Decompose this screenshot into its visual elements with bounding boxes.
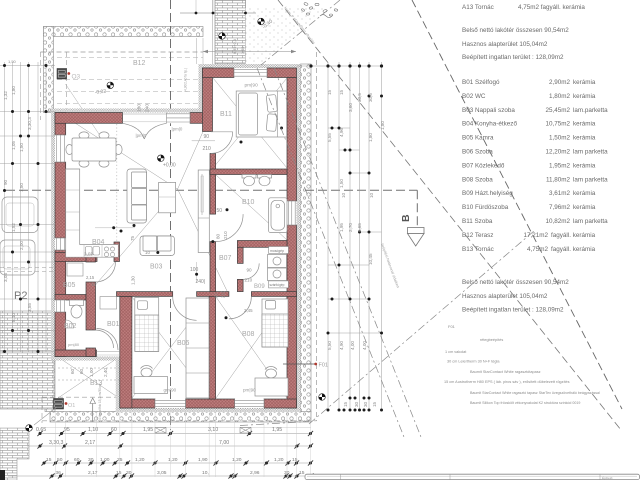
svg-text:Baumit StarContact White ragas: Baumit StarContact White ragasztótapasz <box>470 370 541 374</box>
svg-text:B08 Szoba: B08 Szoba <box>462 176 493 183</box>
svg-text:90: 90 <box>3 179 8 185</box>
svg-text:1,20: 1,20 <box>168 457 178 463</box>
svg-text:Építtető:: Építtető: <box>602 475 613 480</box>
svg-text:5,55: 5,55 <box>327 133 332 142</box>
svg-text:B08: B08 <box>242 331 255 338</box>
svg-text:3,05: 3,05 <box>157 470 167 476</box>
svg-text:1,80: 1,80 <box>11 86 16 95</box>
svg-text:1,50m2: 1,50m2 <box>549 135 571 142</box>
svg-text:O1: O1 <box>68 403 75 409</box>
svg-text:240|: 240| <box>196 279 206 285</box>
svg-text:30,5: 30,5 <box>357 93 362 102</box>
svg-text:1,50: 1,50 <box>339 179 344 188</box>
svg-text:Beépített ingatlan terület : 1: Beépített ingatlan terület : 128,09m2 <box>462 54 564 61</box>
svg-text:25,45m2: 25,45m2 <box>545 107 570 114</box>
svg-text:8,10: 8,10 <box>11 313 16 322</box>
svg-text:60: 60 <box>111 427 117 433</box>
svg-text:2,17: 2,17 <box>85 440 95 446</box>
svg-text:szárítógép: szárítógép <box>270 283 285 287</box>
svg-text:15: 15 <box>299 470 305 476</box>
svg-text:10,75m2: 10,75m2 <box>545 121 570 128</box>
svg-text:B01 Szélfogó: B01 Szélfogó <box>462 79 500 86</box>
svg-text:B13: B13 <box>90 380 103 387</box>
svg-text:B01: B01 <box>107 321 120 328</box>
svg-text:B05 Kamra: B05 Kamra <box>462 135 494 142</box>
svg-text:3,55: 3,55 <box>27 303 32 312</box>
svg-text:10: 10 <box>145 250 150 255</box>
svg-text:60: 60 <box>70 368 75 374</box>
svg-text:210: 210 <box>245 278 253 283</box>
svg-text:1,00: 1,00 <box>89 368 94 377</box>
svg-text:pm|90: pm|90 <box>245 83 259 89</box>
svg-text:2,45: 2,45 <box>244 308 253 313</box>
svg-text:1,50: 1,50 <box>19 143 24 152</box>
svg-text:2,15: 2,15 <box>86 275 95 280</box>
svg-text:1,95m2: 1,95m2 <box>549 162 571 169</box>
svg-text:1,80: 1,80 <box>368 133 373 142</box>
svg-text:7,00: 7,00 <box>219 440 229 446</box>
svg-text:10,82m2: 10,82m2 <box>545 218 570 225</box>
svg-text:1,20: 1,20 <box>135 457 145 463</box>
svg-text:A13 Tornác: A13 Tornác <box>462 4 494 11</box>
svg-text:3,10: 3,10 <box>208 427 218 433</box>
svg-text:B11: B11 <box>220 111 232 118</box>
svg-text:95: 95 <box>64 427 70 433</box>
svg-text:10,: 10, <box>202 470 209 476</box>
svg-text:fagyáll. kerámia: fagyáll. kerámia <box>551 232 596 239</box>
svg-text:210: 210 <box>223 231 228 239</box>
svg-text:100: 100 <box>190 267 199 273</box>
svg-text:pm|90: pm|90 <box>243 388 256 393</box>
svg-text:lam.parketta: lam.parketta <box>573 107 608 114</box>
svg-text:30: 30 <box>354 401 359 407</box>
svg-text:6,65: 6,65 <box>357 223 362 232</box>
svg-text:lam parketta: lam parketta <box>573 218 608 225</box>
svg-text:30: 30 <box>126 470 132 476</box>
svg-text:lam parketta: lam parketta <box>573 176 608 183</box>
svg-text:15: 15 <box>116 470 122 476</box>
svg-text:2,70: 2,70 <box>348 223 353 232</box>
svg-text:3,30,3: 3,30,3 <box>27 117 32 130</box>
svg-text:10: 10 <box>341 192 346 198</box>
svg-text:50: 50 <box>217 208 223 214</box>
svg-text:|pm|0: |pm|0 <box>172 127 183 132</box>
svg-text:Hasznos alapterület 105,04m2: Hasznos alapterület 105,04m2 <box>462 293 548 300</box>
svg-text:7,96m2: 7,96m2 <box>549 204 571 211</box>
svg-text:2,03: 2,03 <box>84 252 93 257</box>
svg-text:B06 Szoba: B06 Szoba <box>462 149 493 156</box>
svg-text:kerámia: kerámia <box>573 162 596 169</box>
svg-text:4,90: 4,90 <box>339 341 344 350</box>
svg-text:1,52: 1,52 <box>11 223 16 232</box>
svg-text:B02: B02 <box>64 323 77 330</box>
svg-text:30,5: 30,5 <box>368 93 373 102</box>
svg-text:lam parketta: lam parketta <box>573 149 608 156</box>
svg-text:2,90m2: 2,90m2 <box>549 79 571 86</box>
svg-text:4,00: 4,00 <box>350 341 355 350</box>
svg-text:1,50: 1,50 <box>241 47 245 54</box>
svg-text:B07: B07 <box>219 255 232 262</box>
svg-text:15: 15 <box>292 457 298 463</box>
svg-text:15: 15 <box>343 401 348 407</box>
svg-text:pm|80: pm|80 <box>68 342 80 347</box>
svg-text:O3: O3 <box>72 74 81 81</box>
svg-text:kerámia: kerámia <box>573 121 596 128</box>
svg-text:Baumit Silikon Top fröcskölt v: Baumit Silikon Top fröcskölt vékonyvakol… <box>470 401 580 405</box>
svg-text:B09 Házt.helyiség: B09 Házt.helyiség <box>462 190 513 197</box>
svg-text:fagyáll. kerámia: fagyáll. kerámia <box>551 246 596 253</box>
svg-text:1,00: 1,00 <box>100 457 110 463</box>
svg-text:F01: F01 <box>319 363 328 369</box>
svg-text:30: 30 <box>88 457 94 463</box>
svg-text:60: 60 <box>79 368 84 374</box>
svg-text:B05: B05 <box>63 282 76 289</box>
svg-text:15: 15 <box>372 401 377 407</box>
svg-text:15 cm Austrotherm H80 EPS ( lá: 15 cm Austrotherm H80 EPS ( láb. piros s… <box>444 380 570 384</box>
svg-text:kerámia: kerámia <box>573 135 596 142</box>
svg-text:4,75m2: 4,75m2 <box>527 246 549 253</box>
svg-text:60: 60 <box>74 457 80 463</box>
svg-text:15: 15 <box>327 89 332 95</box>
svg-text:kerámia: kerámia <box>573 93 596 100</box>
svg-text:B12 Terasz: B12 Terasz <box>462 232 493 239</box>
svg-text:3,03: 3,03 <box>3 273 8 282</box>
svg-text:4,96: 4,96 <box>339 128 344 137</box>
svg-text:12,20m2: 12,20m2 <box>545 149 570 156</box>
svg-text:3,61m2: 3,61m2 <box>549 190 571 197</box>
svg-text:15: 15 <box>46 457 52 463</box>
svg-text:B10: B10 <box>242 199 255 206</box>
svg-text:90: 90 <box>214 293 219 298</box>
svg-text:Hasznos alapterület 105,04m2: Hasznos alapterület 105,04m2 <box>462 41 548 48</box>
svg-text:1,50: 1,50 <box>8 59 17 64</box>
svg-text:1,05: 1,05 <box>11 141 16 150</box>
svg-text:4,75m2 fagyáll. kerámia: 4,75m2 fagyáll. kerámia <box>518 4 585 11</box>
svg-text:1,32: 1,32 <box>3 91 8 100</box>
svg-text:180: 180 <box>137 104 143 112</box>
svg-text:gm|90: gm|90 <box>164 388 177 393</box>
svg-text:mosógép: mosógép <box>270 249 284 253</box>
svg-text:B10 Fürdöszoba: B10 Fürdöszoba <box>462 204 509 211</box>
svg-text:Belső nettó lakótér összesen: Belső nettó lakótér összesen 90,54m2 <box>462 279 569 286</box>
svg-text:Belső nettó lakótér összesen: Belső nettó lakótér összesen 90,54m2 <box>462 27 569 34</box>
svg-text:B11 Szoba: B11 Szoba <box>462 218 493 225</box>
svg-text:30 cm Leiertherm 30 N+F tégla: 30 cm Leiertherm 30 N+F tégla <box>447 360 500 364</box>
svg-text:30: 30 <box>363 401 368 407</box>
svg-text:75: 75 <box>130 235 135 241</box>
svg-text:B13 Tornác: B13 Tornác <box>462 246 494 253</box>
svg-text:B12: B12 <box>133 60 146 67</box>
svg-text:210: 210 <box>203 146 212 152</box>
svg-text:1 cm vakolat: 1 cm vakolat <box>445 350 467 354</box>
svg-text:1,80: 1,80 <box>380 121 385 130</box>
svg-text:1,90: 1,90 <box>198 457 208 463</box>
svg-text:15: 15 <box>339 89 344 95</box>
svg-text:1,95: 1,95 <box>143 427 153 433</box>
svg-text:kerámia: kerámia <box>573 79 596 86</box>
svg-text:10: 10 <box>369 192 374 198</box>
svg-text:B04: B04 <box>92 239 105 246</box>
svg-text:Baumit StarContact White ragas: Baumit StarContact White ragasztó tapasz… <box>470 391 600 395</box>
svg-text:B07 Közlekedő: B07 Közlekedő <box>462 162 505 169</box>
svg-text:F01: F01 <box>448 324 456 329</box>
svg-text:B: B <box>400 214 412 222</box>
svg-text:4 lépcsőfok 15,2cm/30cm: 4 lépcsőfok 15,2cm/30cm <box>98 384 102 420</box>
svg-text:0,65: 0,65 <box>36 427 46 433</box>
svg-text:|pm|0: |pm|0 <box>136 133 147 138</box>
svg-text:2,96: 2,96 <box>250 470 260 476</box>
svg-text:90: 90 <box>204 134 210 140</box>
svg-text:240: 240 <box>145 104 151 112</box>
svg-text:17,21m2: 17,21m2 <box>523 232 548 239</box>
svg-text:B04 Konyha-étkező: B04 Konyha-étkező <box>462 121 517 128</box>
svg-text:90: 90 <box>247 268 253 273</box>
svg-text:Beépített ingatlan terület : 1: Beépített ingatlan terület : 128,09m2 <box>462 307 564 314</box>
svg-text:kerámia: kerámia <box>573 190 596 197</box>
svg-text:1,95: 1,95 <box>339 223 344 232</box>
svg-text:1,20: 1,20 <box>232 457 242 463</box>
svg-text:+0,00: +0,00 <box>163 163 176 169</box>
svg-text:10,45: 10,45 <box>368 253 373 265</box>
svg-text:50: 50 <box>57 457 63 463</box>
svg-text:1,20: 1,20 <box>274 457 284 463</box>
svg-text:3,30,3: 3,30,3 <box>49 440 64 446</box>
svg-text:B09: B09 <box>254 284 265 290</box>
svg-text:2,00: 2,00 <box>19 241 24 250</box>
svg-text:5,50: 5,50 <box>327 341 332 350</box>
svg-text:(4,90/2,40 fa tip.): (4,90/2,40 fa tip.) <box>184 68 188 92</box>
svg-text:B03 Nappali szoba: B03 Nappali szoba <box>462 107 515 114</box>
svg-text:B06: B06 <box>177 340 190 347</box>
svg-text:1,50: 1,50 <box>19 183 24 192</box>
svg-text:1,95: 1,95 <box>272 427 282 433</box>
svg-text:80: 80 <box>216 233 221 239</box>
svg-text:B02 WC: B02 WC <box>462 93 486 100</box>
svg-text:210: 210 <box>221 290 226 298</box>
svg-text:0,95+0,3: 0,95+0,3 <box>233 39 237 54</box>
svg-text:2,40: 2,40 <box>103 368 108 377</box>
svg-text:1,30: 1,30 <box>131 276 136 285</box>
svg-text:,36: ,36 <box>54 470 61 476</box>
svg-text:50: 50 <box>92 282 97 287</box>
svg-text:rétegbeépítés: rétegbeépítés <box>480 338 503 342</box>
svg-text:B03: B03 <box>150 264 163 271</box>
svg-text:3,60: 3,60 <box>348 103 353 112</box>
svg-text:kerámia: kerámia <box>573 204 596 211</box>
svg-text:11,80m2: 11,80m2 <box>546 176 571 183</box>
svg-text:1,80m2: 1,80m2 <box>549 93 571 100</box>
